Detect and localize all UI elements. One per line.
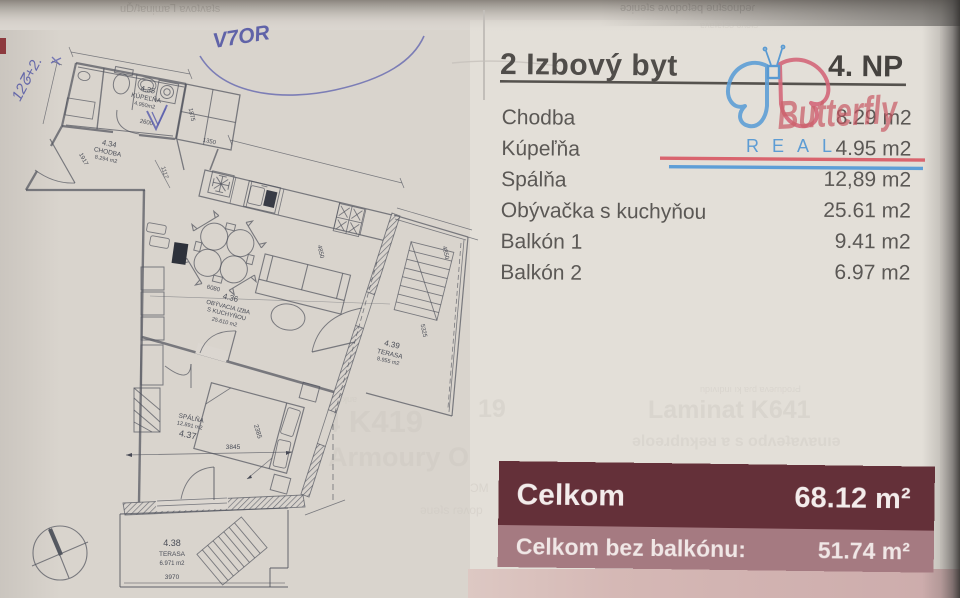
svg-text:Spálňa: Spálňa <box>501 168 567 192</box>
svg-text:ǝɔᴉuǝʇs ǝʌopoʇǝq ǝuʇsoupǝɾ: ǝɔᴉuǝʇs ǝʌopoʇǝq ǝuʇsoupǝɾ <box>620 2 755 14</box>
svg-text:ɐʌɐʇɐʇso ǝʌǝʇs: ɐʌɐʇɐʇso ǝʌǝʇs <box>700 20 759 30</box>
svg-text:Balkón 1: Balkón 1 <box>500 230 582 254</box>
svg-text:6.971 m2: 6.971 m2 <box>159 561 185 567</box>
svg-text:9.41 m2: 9.41 m2 <box>835 230 911 254</box>
svg-text:19: 19 <box>478 395 506 423</box>
svg-text:3970: 3970 <box>165 574 180 581</box>
svg-text:68.12 m²: 68.12 m² <box>794 482 911 516</box>
svg-text:2 Izbový byt: 2 Izbový byt <box>500 48 678 83</box>
svg-text:ǝuǝʇs ɾǝʌop: ǝuǝʇs ɾǝʌop <box>420 503 483 517</box>
svg-text:6.97 m2: 6.97 m2 <box>834 261 910 285</box>
svg-text:ǝloǝɹdnʞǝᴚ ɐ s odʌǝʇɐʌɐuıǝ: ǝloǝɹdnʞǝᴚ ɐ s odʌǝʇɐʌɐuıǝ <box>632 433 841 450</box>
svg-text:4.95 m2: 4.95 m2 <box>835 137 911 161</box>
svg-text:25.61 m2: 25.61 m2 <box>823 199 911 223</box>
svg-text:4.38: 4.38 <box>163 538 181 548</box>
svg-text:Obývačka s kuchyňou: Obývačka s kuchyňou <box>501 199 707 224</box>
svg-text:Celkom bez balkónu:: Celkom bez balkónu: <box>516 533 746 562</box>
svg-text:Celkom: Celkom <box>516 478 625 512</box>
svg-text:12,89 m2: 12,89 m2 <box>823 168 911 192</box>
svg-text:Butterfly: Butterfly <box>776 88 899 138</box>
svg-text:4. NP: 4. NP <box>828 50 903 84</box>
svg-text:npıʌıpuı ıʞ ɐɾd ɐʌǝɾnpoɹԀ: npıʌıpuı ıʞ ɐɾd ɐʌǝɾnpoɹԀ <box>700 384 801 394</box>
svg-text:3845: 3845 <box>226 444 241 451</box>
svg-text:ƆM: ƆM <box>470 481 489 495</box>
svg-text:ʇ K419: ʇ K419 <box>330 404 423 439</box>
svg-text:TERASA: TERASA <box>159 551 186 558</box>
svg-text:Chodba: Chodba <box>502 106 576 130</box>
svg-text:Balkón 2: Balkón 2 <box>500 261 582 285</box>
svg-text:REAL: REAL <box>746 136 845 156</box>
svg-text:Laminat K641: Laminat K641 <box>648 396 811 424</box>
svg-text:Armoury O: Armoury O <box>328 442 469 472</box>
svg-text:uĎ/ʇɐuᴉɯɐꞀ ɐʌoʇʌɐʇs: uĎ/ʇɐuᴉɯɐꞀ ɐʌoʇʌɐʇs <box>120 2 221 15</box>
svg-text:51.74 m²: 51.74 m² <box>818 537 911 564</box>
svg-text:Kúpeľňa: Kúpeľňa <box>501 137 580 161</box>
